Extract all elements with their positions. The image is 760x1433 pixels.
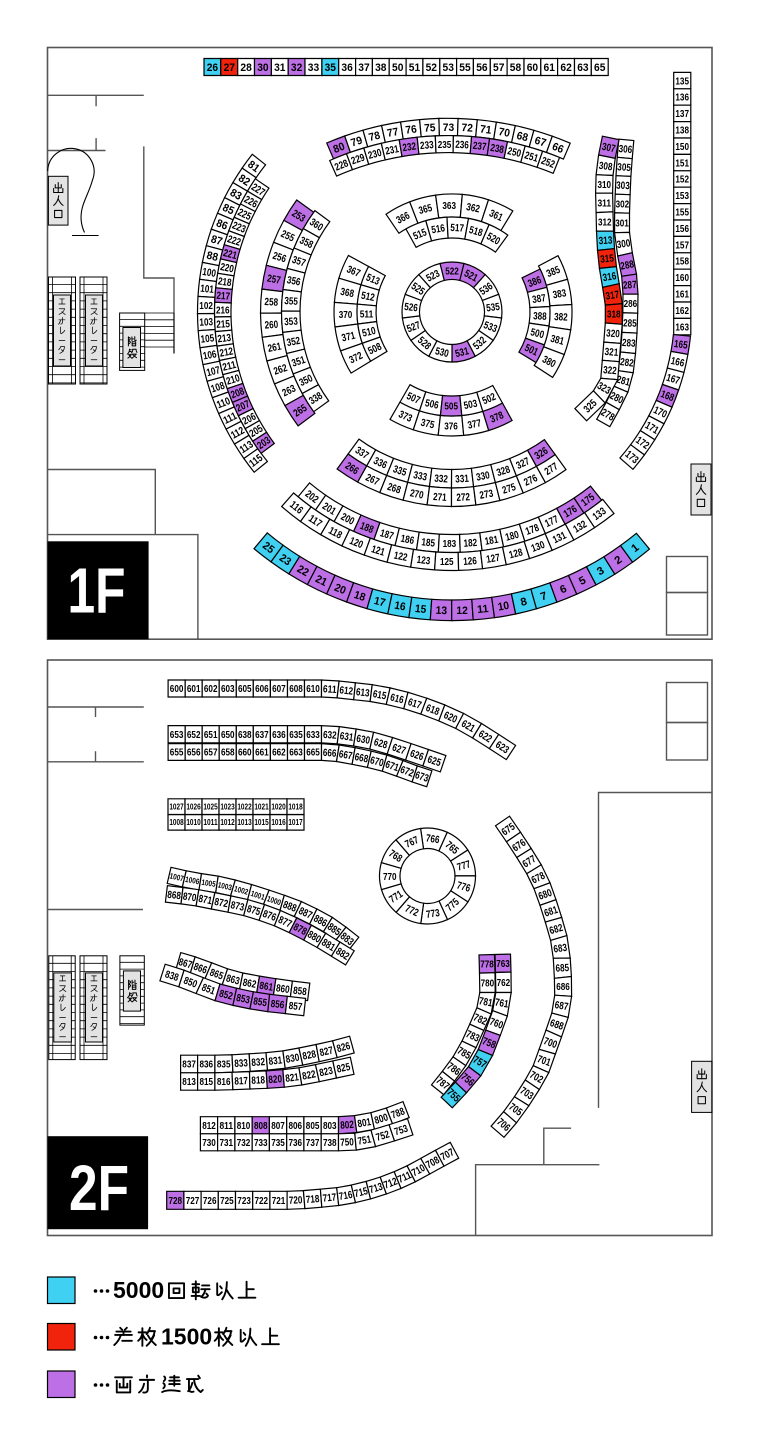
svg-text:71: 71	[479, 123, 492, 136]
svg-text:106: 106	[202, 348, 218, 362]
svg-text:136: 136	[675, 92, 689, 104]
svg-text:815: 815	[200, 1076, 214, 1088]
svg-text:1015: 1015	[254, 818, 269, 827]
svg-text:1027: 1027	[169, 802, 184, 811]
svg-text:871: 871	[197, 893, 213, 907]
svg-text:656: 656	[187, 747, 201, 759]
svg-text:731: 731	[220, 1137, 234, 1149]
svg-text:352: 352	[286, 335, 302, 349]
svg-text:1018: 1018	[288, 802, 303, 811]
svg-text:665: 665	[306, 747, 320, 759]
svg-text:602: 602	[204, 683, 218, 695]
svg-text:631: 631	[339, 730, 354, 744]
svg-text:517: 517	[450, 222, 464, 235]
svg-text:55: 55	[459, 62, 470, 74]
svg-text:773: 773	[425, 907, 440, 921]
svg-text:102: 102	[199, 300, 213, 312]
svg-text:722: 722	[255, 1195, 269, 1207]
svg-text:686: 686	[556, 981, 570, 993]
svg-text:766: 766	[425, 832, 440, 846]
svg-text:663: 663	[289, 747, 303, 759]
svg-text:282: 282	[619, 356, 634, 370]
svg-text:632: 632	[323, 729, 337, 742]
svg-text:636: 636	[272, 729, 286, 741]
svg-text:661: 661	[255, 747, 269, 759]
svg-text:308: 308	[598, 160, 613, 174]
svg-text:75: 75	[424, 122, 436, 135]
svg-text:12: 12	[456, 605, 467, 617]
svg-text:1021: 1021	[254, 802, 269, 811]
svg-text:2F: 2F	[69, 1152, 129, 1224]
svg-text:801: 801	[357, 1116, 373, 1130]
svg-text:781: 781	[478, 995, 494, 1009]
svg-text:860: 860	[275, 982, 290, 996]
svg-text:286: 286	[624, 298, 638, 310]
svg-text:805: 805	[306, 1120, 320, 1132]
svg-text:1F: 1F	[68, 555, 126, 627]
svg-text:762: 762	[497, 977, 511, 989]
svg-text:56: 56	[476, 62, 487, 74]
svg-text:1022: 1022	[237, 802, 252, 811]
svg-text:320: 320	[606, 327, 621, 340]
svg-text:812: 812	[202, 1120, 216, 1132]
svg-text:16: 16	[393, 600, 406, 614]
svg-text:183: 183	[443, 538, 457, 550]
svg-text:370: 370	[339, 309, 353, 321]
svg-text:72: 72	[461, 122, 473, 135]
svg-text:235: 235	[438, 139, 452, 151]
svg-text:612: 612	[339, 684, 354, 697]
svg-text:271: 271	[433, 491, 447, 504]
svg-text:822: 822	[301, 1068, 317, 1082]
svg-text:158: 158	[675, 256, 689, 268]
svg-text:30: 30	[257, 62, 268, 74]
svg-text:723: 723	[237, 1195, 251, 1207]
svg-text:156: 156	[675, 223, 689, 235]
svg-text:103: 103	[199, 316, 213, 329]
svg-text:35: 35	[325, 62, 336, 74]
svg-text:313: 313	[598, 235, 612, 248]
svg-text:761: 761	[494, 997, 510, 1011]
svg-text:5000: 5000	[113, 1277, 164, 1303]
svg-text:1011: 1011	[203, 818, 218, 827]
svg-text:858: 858	[292, 985, 307, 999]
svg-text:817: 817	[234, 1075, 248, 1088]
svg-text:218: 218	[217, 275, 232, 289]
svg-text:65: 65	[594, 62, 605, 74]
svg-text:728: 728	[169, 1195, 183, 1207]
svg-text:302: 302	[616, 198, 630, 210]
svg-text:751: 751	[357, 1133, 373, 1147]
svg-text:733: 733	[254, 1137, 268, 1149]
svg-text:856: 856	[270, 998, 285, 1011]
svg-text:318: 318	[607, 309, 621, 321]
svg-text:763: 763	[496, 958, 510, 970]
svg-text:135: 135	[675, 75, 689, 87]
svg-text:732: 732	[237, 1137, 251, 1149]
svg-text:635: 635	[289, 729, 303, 741]
svg-text:161: 161	[675, 289, 689, 301]
svg-text:512: 512	[360, 290, 376, 304]
svg-text:685: 685	[555, 962, 569, 975]
svg-text:331: 331	[455, 473, 469, 486]
svg-text:868: 868	[167, 889, 182, 902]
svg-text:613: 613	[355, 686, 370, 699]
svg-text:1023: 1023	[220, 802, 235, 811]
svg-text:770: 770	[383, 871, 397, 883]
svg-text:855: 855	[252, 995, 267, 1009]
svg-text:260: 260	[264, 319, 279, 332]
svg-text:630: 630	[355, 733, 371, 747]
svg-text:720: 720	[289, 1194, 303, 1207]
svg-text:316: 316	[602, 270, 617, 284]
svg-text:637: 637	[255, 729, 269, 741]
svg-text:832: 832	[251, 1056, 265, 1069]
svg-text:717: 717	[322, 1191, 337, 1204]
svg-text:726: 726	[203, 1195, 217, 1207]
svg-text:315: 315	[600, 252, 615, 265]
svg-text:836: 836	[200, 1059, 214, 1071]
svg-text:105: 105	[200, 332, 215, 345]
svg-text:870: 870	[182, 891, 197, 905]
svg-text:306: 306	[618, 143, 633, 156]
svg-text:610: 610	[306, 683, 320, 695]
svg-text:126: 126	[463, 555, 478, 568]
svg-text:270: 270	[409, 487, 425, 501]
svg-text:185: 185	[421, 536, 436, 549]
svg-text:833: 833	[234, 1057, 248, 1070]
svg-text:37: 37	[358, 62, 369, 74]
svg-text:31: 31	[274, 62, 285, 74]
svg-text:615: 615	[372, 688, 388, 702]
svg-text:387: 387	[531, 292, 546, 306]
svg-text:333: 333	[412, 469, 428, 483]
svg-text:687: 687	[554, 999, 569, 1013]
svg-text:232: 232	[402, 141, 417, 155]
svg-text:153: 153	[675, 190, 689, 202]
svg-text:53: 53	[443, 62, 454, 74]
svg-text:216: 216	[216, 304, 230, 316]
svg-text:38: 38	[375, 62, 386, 74]
svg-text:165: 165	[673, 338, 688, 352]
svg-text:388: 388	[533, 310, 547, 323]
svg-text:50: 50	[392, 62, 403, 74]
svg-text:312: 312	[598, 216, 612, 228]
svg-text:505: 505	[444, 401, 458, 413]
svg-text:70: 70	[497, 126, 510, 140]
svg-text:36: 36	[341, 62, 352, 74]
svg-text:816: 816	[217, 1076, 231, 1088]
svg-text:300: 300	[616, 237, 631, 251]
svg-text:1026: 1026	[186, 802, 201, 811]
svg-text:535: 535	[486, 301, 501, 315]
svg-text:716: 716	[338, 1189, 354, 1203]
svg-text:730: 730	[202, 1137, 216, 1149]
svg-text:608: 608	[289, 683, 303, 695]
svg-text:1012: 1012	[220, 818, 235, 827]
svg-text:653: 653	[170, 729, 184, 741]
svg-text:607: 607	[272, 683, 286, 695]
svg-text:683: 683	[553, 942, 568, 956]
svg-text:778: 778	[480, 959, 494, 971]
svg-text:750: 750	[340, 1136, 354, 1149]
svg-text:233: 233	[420, 139, 435, 152]
svg-text:727: 727	[186, 1195, 200, 1207]
svg-text:638: 638	[238, 729, 252, 741]
svg-text:321: 321	[604, 346, 619, 359]
svg-text:657: 657	[204, 747, 218, 759]
svg-text:738: 738	[323, 1137, 337, 1149]
svg-text:238: 238	[489, 142, 505, 156]
svg-text:837: 837	[182, 1059, 196, 1071]
svg-text:273: 273	[479, 488, 495, 502]
svg-text:137: 137	[675, 108, 689, 120]
svg-text:151: 151	[675, 157, 689, 169]
svg-text:26: 26	[207, 62, 218, 74]
svg-text:803: 803	[323, 1120, 337, 1132]
svg-text:522: 522	[445, 265, 459, 277]
svg-text:13: 13	[435, 605, 447, 617]
svg-text:332: 332	[434, 473, 448, 486]
svg-text:163: 163	[675, 321, 689, 333]
svg-text:157: 157	[675, 239, 689, 251]
svg-text:1010: 1010	[186, 818, 201, 827]
svg-text:285: 285	[623, 317, 637, 330]
svg-text:330: 330	[475, 469, 491, 483]
svg-text:28: 28	[240, 62, 251, 74]
svg-text:61: 61	[544, 62, 555, 74]
svg-text:655: 655	[170, 747, 184, 759]
svg-text:287: 287	[623, 279, 638, 292]
svg-text:633: 633	[306, 729, 320, 741]
svg-text:835: 835	[217, 1058, 231, 1070]
svg-text:526: 526	[404, 301, 419, 315]
svg-text:658: 658	[221, 747, 235, 759]
svg-text:32: 32	[291, 62, 302, 74]
svg-text:611: 611	[323, 683, 337, 696]
svg-text:516: 516	[431, 222, 447, 236]
svg-text:303: 303	[616, 180, 630, 193]
svg-text:160: 160	[675, 272, 689, 284]
svg-text:257: 257	[266, 273, 282, 287]
svg-text:1008: 1008	[169, 818, 184, 827]
svg-text:15: 15	[414, 603, 427, 616]
svg-text:818: 818	[251, 1074, 265, 1087]
svg-text:76: 76	[405, 123, 418, 136]
svg-text:62: 62	[560, 62, 571, 74]
svg-text:383: 383	[552, 287, 568, 301]
svg-text:1025: 1025	[203, 802, 218, 811]
svg-text:213: 213	[217, 332, 232, 345]
svg-text:660: 660	[238, 747, 252, 759]
svg-text:830: 830	[285, 1052, 301, 1066]
svg-text:820: 820	[268, 1073, 282, 1086]
svg-text:780: 780	[481, 977, 495, 989]
svg-text:236: 236	[455, 139, 469, 152]
svg-text:368: 368	[339, 286, 355, 300]
svg-text:322: 322	[603, 364, 618, 377]
svg-text:152: 152	[675, 174, 689, 186]
svg-text:51: 51	[409, 62, 420, 74]
svg-text:811: 811	[220, 1120, 234, 1132]
svg-text:162: 162	[675, 305, 689, 317]
svg-text:283: 283	[622, 337, 637, 350]
svg-text:27: 27	[224, 62, 235, 74]
svg-text:363: 363	[442, 200, 456, 212]
svg-text:605: 605	[238, 683, 252, 695]
svg-text:662: 662	[272, 747, 286, 759]
svg-text:1013: 1013	[237, 818, 252, 827]
svg-text:601: 601	[187, 683, 201, 695]
svg-text:58: 58	[510, 62, 521, 74]
svg-text:127: 127	[485, 552, 501, 566]
svg-text:650: 650	[221, 729, 235, 741]
svg-text:1500: 1500	[161, 1324, 212, 1350]
svg-text:666: 666	[322, 747, 337, 760]
svg-text:101: 101	[200, 283, 215, 296]
svg-text:150: 150	[675, 141, 689, 153]
svg-text:258: 258	[264, 296, 278, 309]
svg-text:821: 821	[285, 1071, 300, 1085]
svg-text:382: 382	[554, 311, 568, 324]
svg-text:862: 862	[242, 977, 258, 991]
svg-text:10: 10	[497, 600, 510, 614]
svg-text:651: 651	[204, 729, 218, 741]
svg-text:100: 100	[201, 266, 216, 280]
svg-text:310: 310	[598, 179, 612, 191]
svg-text:813: 813	[182, 1076, 196, 1088]
svg-text:806: 806	[289, 1120, 303, 1132]
svg-text:808: 808	[254, 1120, 268, 1132]
svg-text:217: 217	[216, 290, 231, 303]
svg-text:305: 305	[617, 161, 632, 174]
svg-text:736: 736	[289, 1137, 303, 1149]
svg-text:272: 272	[456, 491, 470, 504]
svg-text:737: 737	[306, 1137, 320, 1149]
svg-text:311: 311	[598, 197, 612, 209]
svg-text:52: 52	[426, 62, 437, 74]
svg-text:11: 11	[477, 603, 490, 616]
svg-text:317: 317	[605, 289, 620, 303]
svg-text:721: 721	[272, 1195, 286, 1207]
svg-text:60: 60	[527, 62, 538, 74]
svg-text:667: 667	[338, 748, 354, 762]
svg-text:73: 73	[443, 122, 454, 134]
svg-text:1020: 1020	[271, 802, 286, 811]
svg-text:33: 33	[308, 62, 319, 74]
svg-text:57: 57	[493, 62, 504, 74]
svg-text:606: 606	[255, 683, 269, 695]
svg-text:831: 831	[268, 1054, 283, 1067]
svg-text:77: 77	[386, 126, 399, 140]
svg-text:125: 125	[440, 556, 454, 568]
svg-text:353: 353	[284, 316, 298, 329]
svg-text:600: 600	[170, 683, 184, 695]
svg-text:857: 857	[288, 1000, 303, 1013]
svg-text:237: 237	[472, 140, 487, 153]
svg-text:138: 138	[675, 125, 689, 137]
svg-text:181: 181	[484, 534, 500, 548]
svg-text:603: 603	[221, 683, 235, 695]
svg-text:802: 802	[340, 1119, 354, 1132]
svg-text:861: 861	[259, 980, 274, 994]
svg-text:376: 376	[444, 421, 458, 433]
svg-text:63: 63	[577, 62, 588, 74]
svg-text:215: 215	[216, 318, 230, 331]
svg-text:725: 725	[220, 1195, 234, 1207]
svg-text:810: 810	[237, 1120, 251, 1132]
svg-text:511: 511	[360, 309, 374, 321]
svg-text:1016: 1016	[271, 818, 286, 827]
svg-text:355: 355	[284, 295, 299, 308]
svg-text:182: 182	[463, 537, 478, 550]
svg-text:807: 807	[271, 1120, 285, 1132]
svg-text:123: 123	[416, 554, 431, 567]
svg-text:735: 735	[271, 1137, 285, 1149]
svg-text:718: 718	[305, 1193, 320, 1206]
svg-text:301: 301	[615, 218, 629, 230]
svg-text:1017: 1017	[288, 818, 303, 827]
svg-text:652: 652	[187, 729, 201, 741]
svg-text:155: 155	[675, 207, 689, 219]
